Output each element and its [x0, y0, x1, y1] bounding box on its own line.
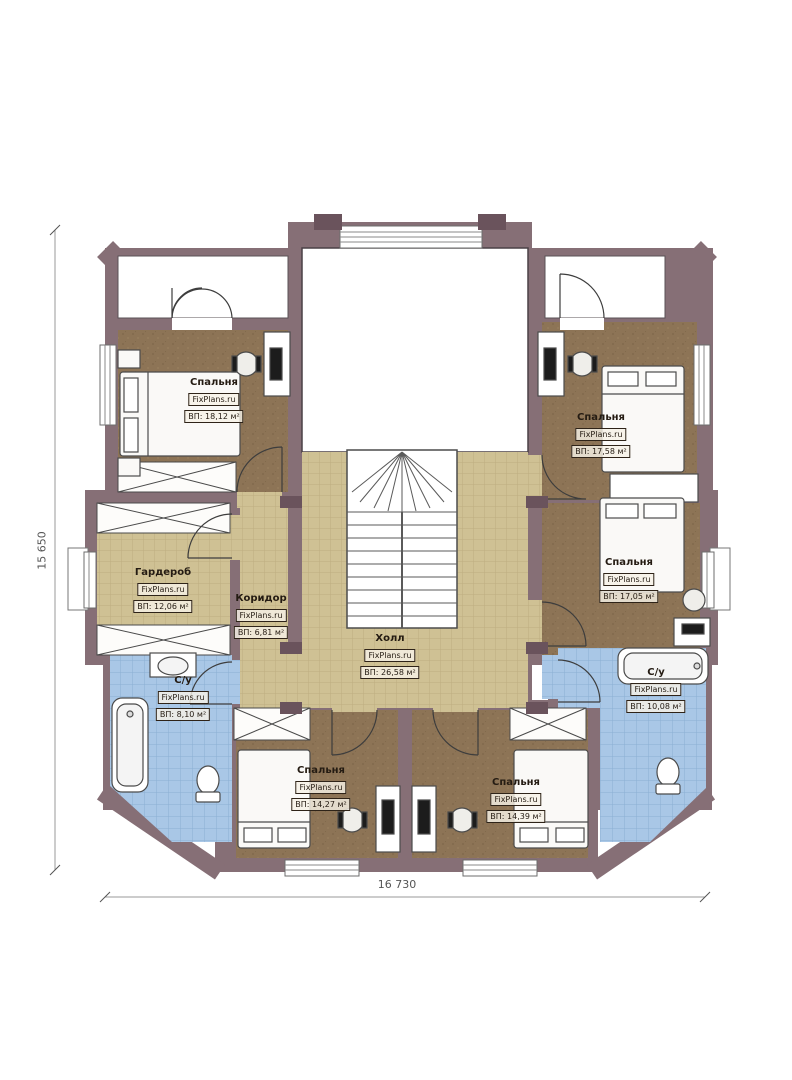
room-name: Холл [360, 634, 419, 644]
room-name: С/у [156, 676, 210, 686]
area-label: ВП: 17,05 м² [599, 590, 658, 603]
room-label-wardrobe: Гардероб FixPlans.ru ВП: 12,06 м² [133, 568, 192, 613]
room-name: С/у [626, 668, 685, 678]
dimension-height-label: 15 650 [36, 519, 49, 583]
room-label-hall: Холл FixPlans.ru ВП: 26,58 м² [360, 634, 419, 679]
terrace-top-right [545, 256, 665, 318]
area-label: ВП: 10,08 м² [626, 700, 685, 713]
floor-plan-drawing [0, 0, 792, 1080]
void-open-space [302, 248, 528, 452]
bay-window-right [702, 548, 730, 610]
area-label: ВП: 14,39 м² [486, 810, 545, 823]
bathtub-left [112, 698, 148, 792]
watermark: FixPlans.ru [364, 649, 415, 662]
window-bottom-left [285, 860, 359, 876]
room-label-bedroom-bottom-right: Спальня FixPlans.ru ВП: 14,39 м² [486, 778, 545, 823]
area-label: ВП: 8,10 м² [156, 708, 210, 721]
staircase [347, 450, 457, 628]
watermark: FixPlans.ru [137, 583, 188, 596]
watermark: FixPlans.ru [575, 428, 626, 441]
watermark: FixPlans.ru [157, 691, 208, 704]
watermark: FixPlans.ru [603, 573, 654, 586]
sink-bathroom-left [150, 653, 196, 677]
room-label-bathroom-right: С/у FixPlans.ru ВП: 10,08 м² [626, 668, 685, 713]
floor-plan-page: Спальня FixPlans.ru ВП: 18,12 м² Спальня… [0, 0, 792, 1080]
room-name: Коридор [234, 594, 288, 604]
desk-top-right [538, 332, 564, 396]
window-right-bedroom [694, 345, 710, 425]
window-left-bedroom [100, 345, 116, 425]
chair-bottom-right [448, 808, 477, 832]
area-label: ВП: 26,58 м² [360, 666, 419, 679]
toilet-right [656, 758, 680, 794]
window-top-center [340, 226, 482, 248]
room-label-bedroom-top-right: Спальня FixPlans.ru ВП: 17,58 м² [571, 413, 630, 458]
watermark: FixPlans.ru [235, 609, 286, 622]
bay-window-left [68, 548, 96, 610]
wardrobe-unit-bottom [97, 625, 230, 655]
watermark: FixPlans.ru [188, 393, 239, 406]
room-label-corridor: Коридор FixPlans.ru ВП: 6,81 м² [234, 594, 288, 639]
area-label: ВП: 6,81 м² [234, 626, 288, 639]
room-name: Спальня [291, 766, 350, 776]
room-label-bathroom-left: С/у FixPlans.ru ВП: 8,10 м² [156, 676, 210, 721]
watermark: FixPlans.ru [630, 683, 681, 696]
desk-middle-right [674, 618, 710, 646]
watermark: FixPlans.ru [295, 781, 346, 794]
area-label: ВП: 12,06 м² [133, 600, 192, 613]
area-label: ВП: 17,58 м² [571, 445, 630, 458]
side-table-middle-right [683, 589, 705, 611]
room-label-bedroom-middle-right: Спальня FixPlans.ru ВП: 17,05 м² [599, 558, 658, 603]
room-name: Спальня [571, 413, 630, 423]
watermark: FixPlans.ru [490, 793, 541, 806]
window-bottom-right [463, 860, 537, 876]
desk-bottom-right [412, 786, 436, 852]
desk-top-left [264, 332, 290, 396]
room-name: Спальня [599, 558, 658, 568]
room-label-bedroom-top-left: Спальня FixPlans.ru ВП: 18,12 м² [184, 378, 243, 423]
room-name: Спальня [184, 378, 243, 388]
toilet-left [196, 766, 220, 802]
desk-bottom-left [376, 786, 400, 852]
chair-top-right [568, 352, 597, 376]
room-label-bedroom-bottom-left: Спальня FixPlans.ru ВП: 14,27 м² [291, 766, 350, 811]
chair-top-left [232, 352, 261, 376]
room-name: Гардероб [133, 568, 192, 578]
dimension-width-label: 16 730 [362, 878, 432, 891]
area-label: ВП: 14,27 м² [291, 798, 350, 811]
chair-bottom-left [338, 808, 367, 832]
terrace-top-left [118, 256, 288, 318]
area-label: ВП: 18,12 м² [184, 410, 243, 423]
room-name: Спальня [486, 778, 545, 788]
wardrobe-unit-top [97, 503, 230, 533]
